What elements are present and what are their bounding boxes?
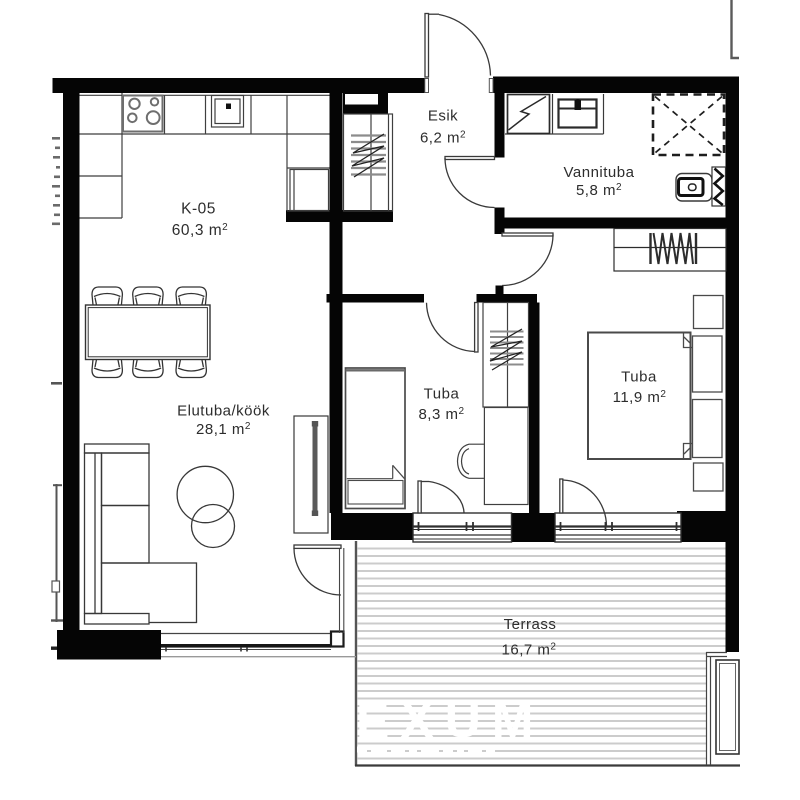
svg-text:Tuba: Tuba: [621, 369, 657, 386]
svg-text:Elutuba/köök: Elutuba/köök: [177, 403, 270, 420]
svg-text:8,3 m2: 8,3 m2: [418, 406, 464, 423]
svg-text:5,8 m2: 5,8 m2: [576, 182, 622, 199]
svg-text:6,2 m2: 6,2 m2: [420, 130, 466, 147]
svg-text:Esik: Esik: [428, 108, 458, 125]
svg-text:EXUM: EXUM: [356, 692, 544, 748]
svg-text:K-05: K-05: [181, 201, 216, 218]
svg-text:16,7 m2: 16,7 m2: [502, 642, 557, 659]
svg-text:28,1 m2: 28,1 m2: [196, 421, 251, 438]
svg-text:Vannituba: Vannituba: [564, 164, 635, 181]
svg-text:11,9 m2: 11,9 m2: [613, 389, 667, 406]
svg-text:Terrass: Terrass: [504, 616, 557, 633]
svg-text:Tuba: Tuba: [424, 386, 460, 403]
svg-text:60,3 m2: 60,3 m2: [172, 222, 228, 239]
